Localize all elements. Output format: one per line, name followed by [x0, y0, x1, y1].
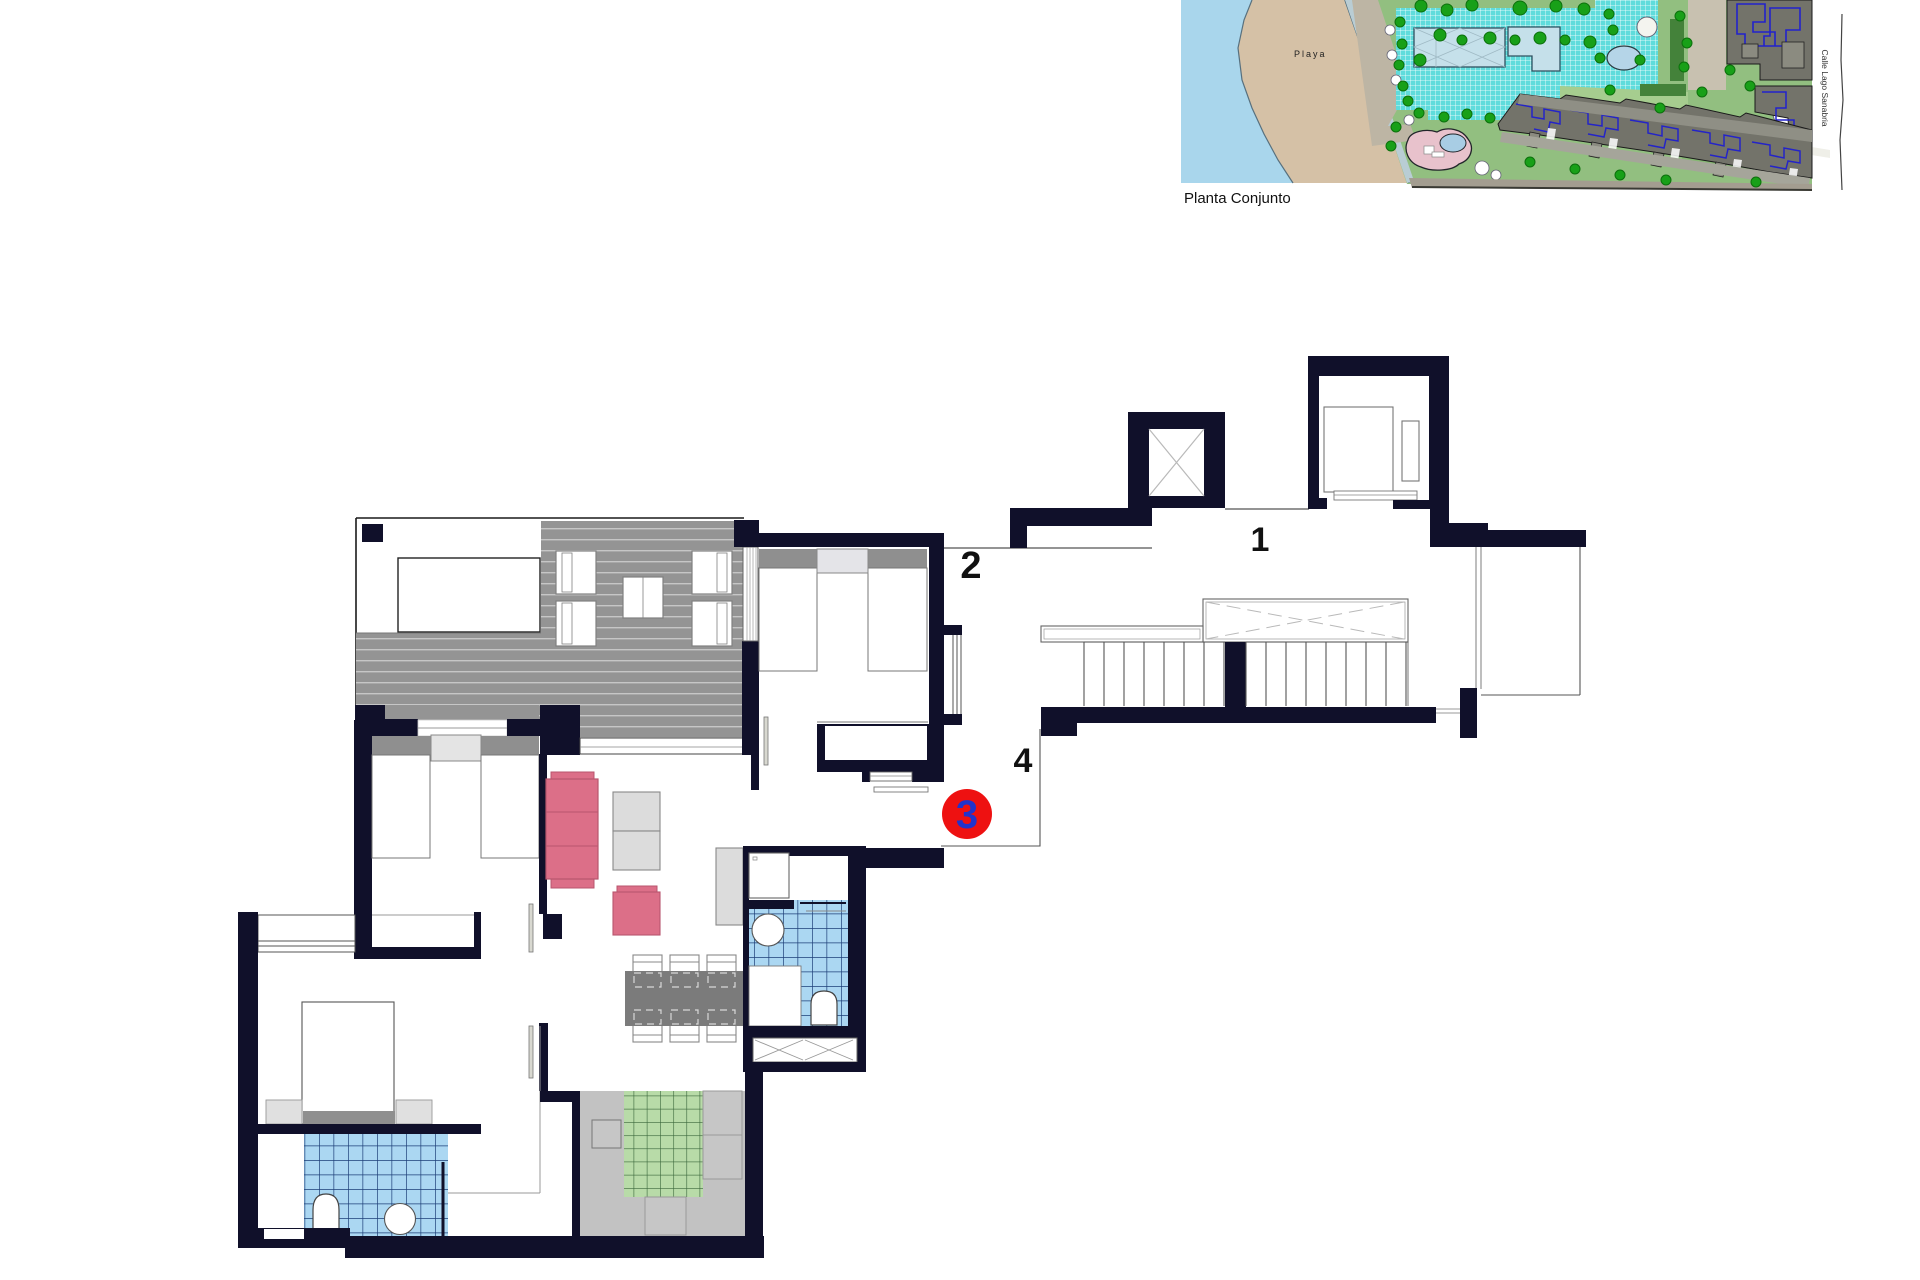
svg-text:3: 3 — [956, 793, 978, 837]
svg-text:Planta Conjunto: Planta Conjunto — [1184, 190, 1291, 207]
svg-text:2: 2 — [960, 545, 981, 587]
svg-text:Playa: Playa — [1294, 49, 1327, 59]
svg-text:Calle Lago Sanabria: Calle Lago Sanabria — [1820, 49, 1830, 126]
svg-text:1: 1 — [1251, 521, 1270, 559]
svg-text:4: 4 — [1014, 742, 1033, 780]
